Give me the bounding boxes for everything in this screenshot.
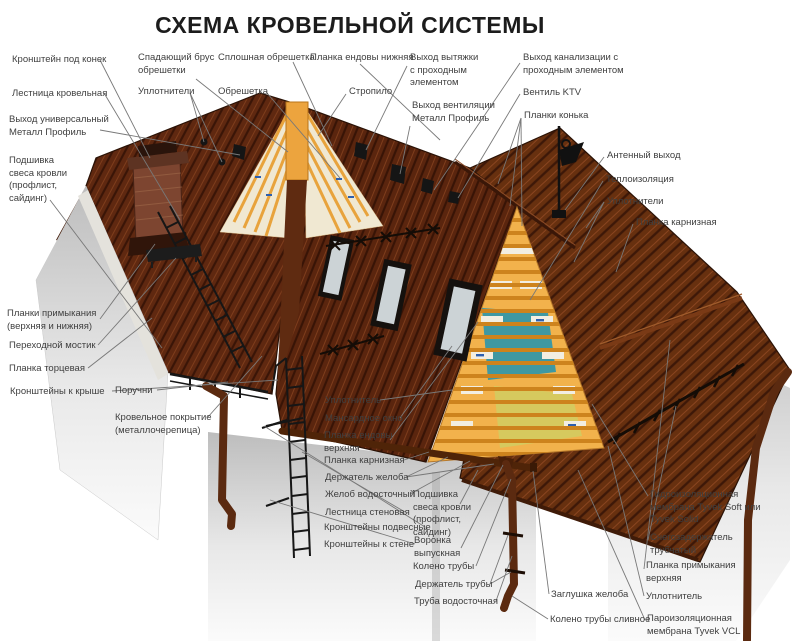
wall-corner-shadow [432, 472, 440, 641]
valley-ridge-board [286, 102, 308, 180]
roofing-scheme-page: СХЕМА КРОВЕЛЬНОЙ СИСТЕМЫ [0, 0, 800, 641]
gutter-end-cap [530, 463, 537, 472]
chimney [127, 141, 189, 256]
roof-illustration [0, 0, 800, 641]
